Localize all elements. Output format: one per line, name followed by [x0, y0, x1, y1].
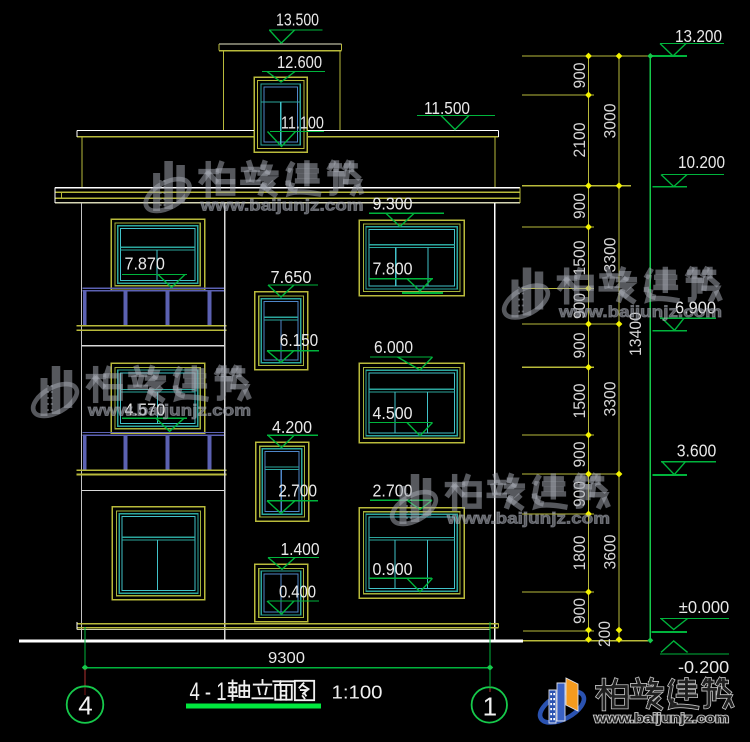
svg-text:0.900: 0.900 — [373, 559, 413, 579]
svg-text:1: 1 — [483, 692, 497, 722]
svg-text:www.baijunjz.com: www.baijunjz.com — [199, 198, 363, 215]
svg-text:1800: 1800 — [570, 536, 589, 571]
svg-text:900: 900 — [570, 193, 589, 219]
svg-text:3.600: 3.600 — [677, 440, 717, 460]
svg-text:1:100: 1:100 — [332, 682, 383, 703]
svg-text:12.600: 12.600 — [277, 52, 322, 72]
svg-text:7.870: 7.870 — [124, 254, 165, 274]
svg-text:3000: 3000 — [601, 104, 620, 139]
svg-text:10.200: 10.200 — [678, 152, 725, 172]
svg-text:900: 900 — [570, 598, 589, 624]
svg-text:4 - 1: 4 - 1 — [190, 678, 227, 706]
svg-text:7.800: 7.800 — [373, 259, 413, 279]
svg-text:7.650: 7.650 — [271, 267, 312, 287]
svg-text:900: 900 — [570, 442, 589, 468]
svg-text:6.000: 6.000 — [374, 337, 413, 357]
svg-text:3300: 3300 — [601, 238, 620, 273]
svg-text:4.200: 4.200 — [272, 417, 312, 437]
svg-text:900: 900 — [570, 63, 589, 89]
svg-text:3600: 3600 — [601, 535, 620, 570]
svg-text:9300: 9300 — [268, 650, 305, 667]
svg-text:13.500: 13.500 — [276, 10, 319, 30]
svg-text:11.100: 11.100 — [281, 113, 324, 133]
svg-text:900: 900 — [570, 333, 589, 359]
svg-text:3300: 3300 — [601, 382, 620, 417]
svg-text:4.500: 4.500 — [373, 403, 413, 423]
svg-text:200: 200 — [595, 621, 614, 647]
svg-text:1500: 1500 — [570, 384, 589, 419]
svg-text:www.baijunjz.com: www.baijunjz.com — [87, 403, 251, 420]
svg-text:±0.000: ±0.000 — [679, 597, 730, 617]
svg-text:1.400: 1.400 — [281, 539, 320, 559]
svg-text:9.300: 9.300 — [373, 194, 413, 214]
svg-text:2.700: 2.700 — [278, 481, 317, 501]
svg-text:4: 4 — [78, 691, 92, 721]
svg-text:www.baijunjz.com: www.baijunjz.com — [593, 711, 729, 726]
svg-text:www.baijunjz.com: www.baijunjz.com — [446, 511, 610, 528]
svg-text:www.baijunjz.com: www.baijunjz.com — [558, 304, 722, 321]
svg-text:0.400: 0.400 — [279, 582, 316, 602]
svg-text:-0.200: -0.200 — [678, 657, 729, 677]
svg-text:2100: 2100 — [570, 123, 589, 158]
svg-text:6.150: 6.150 — [280, 330, 319, 350]
